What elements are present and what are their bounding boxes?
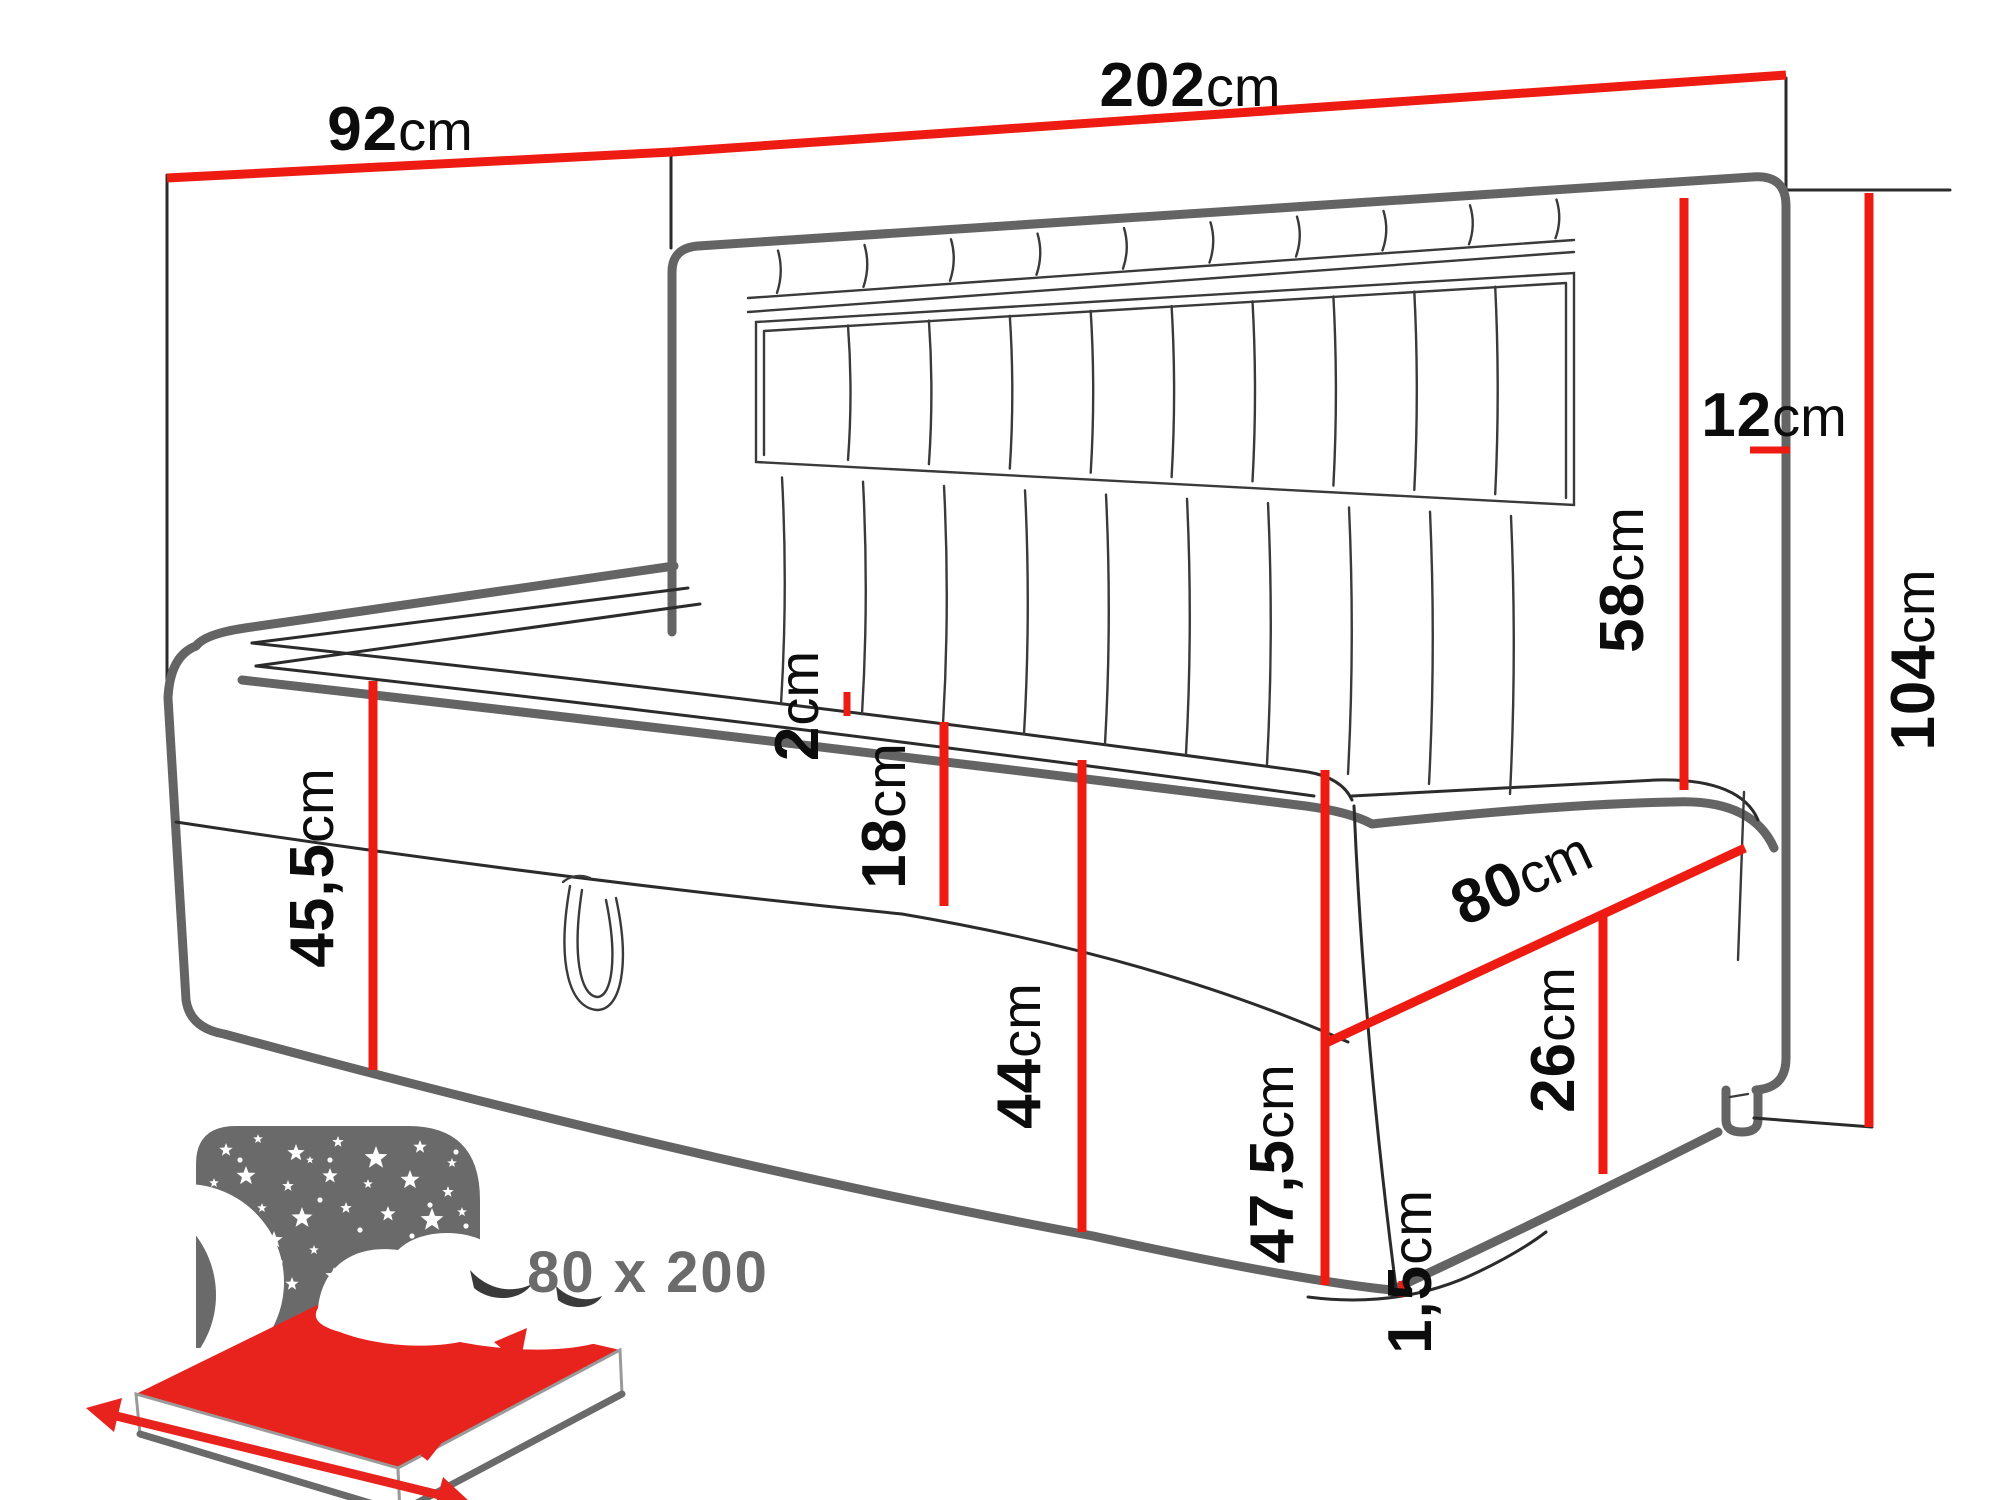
star-dot-icon	[327, 1157, 332, 1162]
tuft-line	[862, 482, 866, 715]
bed-size-icon: 80 x 200	[20, 1126, 769, 1500]
right-foot-detail	[1730, 1094, 1748, 1097]
tuft-line	[1429, 512, 1433, 784]
tuft-line	[1510, 516, 1514, 794]
tuft-line	[1348, 507, 1352, 774]
dim-depth-label: 92cm	[327, 95, 473, 164]
star-dot-icon	[237, 1157, 242, 1162]
dim-side-panel-label: 12cm	[1701, 381, 1847, 450]
dim-left-box-label: 45,5cm	[278, 768, 347, 967]
tuft-line	[1556, 200, 1560, 239]
tuft-line	[929, 321, 932, 465]
star-dot-icon	[453, 1149, 458, 1154]
dim-bed-width-label: 80cm	[1441, 815, 1602, 939]
dim-topper-label: 2cm	[763, 651, 832, 761]
star-dot-icon	[409, 1233, 414, 1238]
tuft-line	[1469, 205, 1473, 244]
tuft-line	[950, 239, 954, 280]
dim-total-height-label: 104cm	[1879, 569, 1948, 750]
tuft-line	[1024, 490, 1028, 734]
tuft-line	[1333, 296, 1336, 485]
dim-base-gap-label: 1,5cm	[1376, 1190, 1445, 1354]
dim-right-storage-label: 26cm	[1519, 967, 1588, 1113]
star-dot-icon	[427, 1202, 432, 1207]
dim-headboard-height-label: 58cm	[1588, 507, 1657, 653]
arrow-icon	[86, 1398, 122, 1432]
tuft-line	[1186, 499, 1190, 754]
tuft-line	[848, 326, 851, 460]
star-dot-icon	[317, 1197, 322, 1202]
tuft-line	[1296, 217, 1300, 257]
tuft-line	[943, 486, 947, 724]
tuft-line	[1383, 211, 1387, 250]
shelf-line-lower	[748, 252, 1574, 312]
tuft-line	[1414, 292, 1417, 490]
storage-handle-icon	[563, 876, 623, 1010]
tuft-line	[1091, 311, 1094, 473]
tuft-line	[1037, 234, 1041, 275]
mattress-front-seam	[242, 680, 1774, 848]
star-dot-icon	[203, 1237, 208, 1242]
star-dot-icon	[463, 1223, 468, 1228]
tuft-line	[1123, 228, 1127, 269]
tuft-line	[1210, 222, 1214, 262]
tuft-line	[1105, 495, 1109, 744]
star-dot-icon	[357, 1227, 362, 1232]
dim-storage-label: 44cm	[985, 983, 1054, 1129]
box-front-seam	[176, 822, 1348, 1042]
tuft-line	[1495, 287, 1498, 495]
dim-length-label: 202cm	[1099, 51, 1280, 120]
tuft-line	[1010, 316, 1013, 469]
dim-front-height-label: 47,5cm	[1238, 1064, 1307, 1263]
dimension-labels: 92cm 202cm 12cm 58cm 104cm 45,5cm 2cm 18…	[278, 51, 1948, 1354]
floor-line	[1754, 1118, 1872, 1127]
star-dot-icon	[237, 1327, 242, 1332]
dim-upper-box-label: 18cm	[850, 743, 919, 889]
diagram-canvas: 92cm 202cm 12cm 58cm 104cm 45,5cm 2cm 18…	[0, 0, 2000, 1500]
tuft-line	[864, 245, 868, 287]
bed-dimension-diagram: 92cm 202cm 12cm 58cm 104cm 45,5cm 2cm 18…	[0, 0, 2000, 1500]
tuft-line	[1267, 503, 1271, 764]
tuft-line	[777, 251, 781, 293]
tuft-line	[1172, 306, 1175, 477]
size-badge: 80 x 200	[527, 1240, 769, 1305]
star-dot-icon	[277, 1259, 282, 1264]
tuft-line	[1253, 301, 1256, 481]
